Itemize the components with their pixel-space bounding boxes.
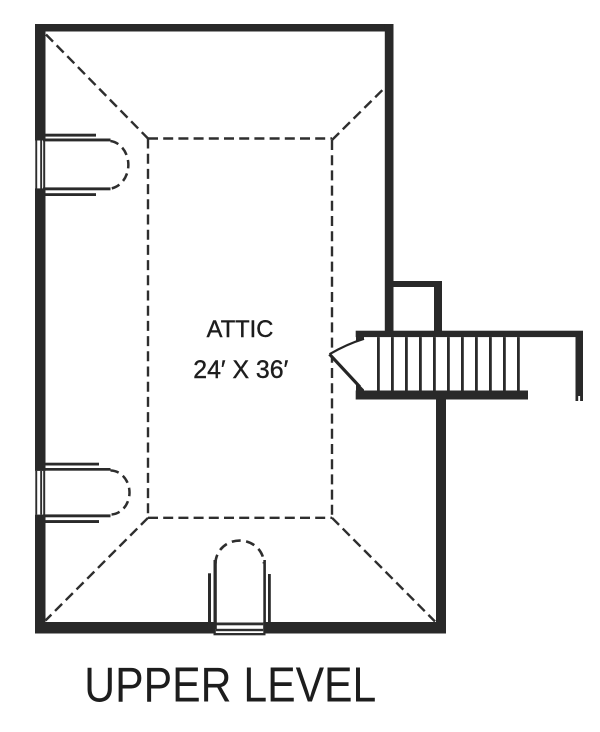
svg-text:24′ X 36′: 24′ X 36′ [193,357,288,384]
svg-text:ATTIC: ATTIC [207,317,274,343]
svg-text:UPPER LEVEL: UPPER LEVEL [84,658,376,713]
